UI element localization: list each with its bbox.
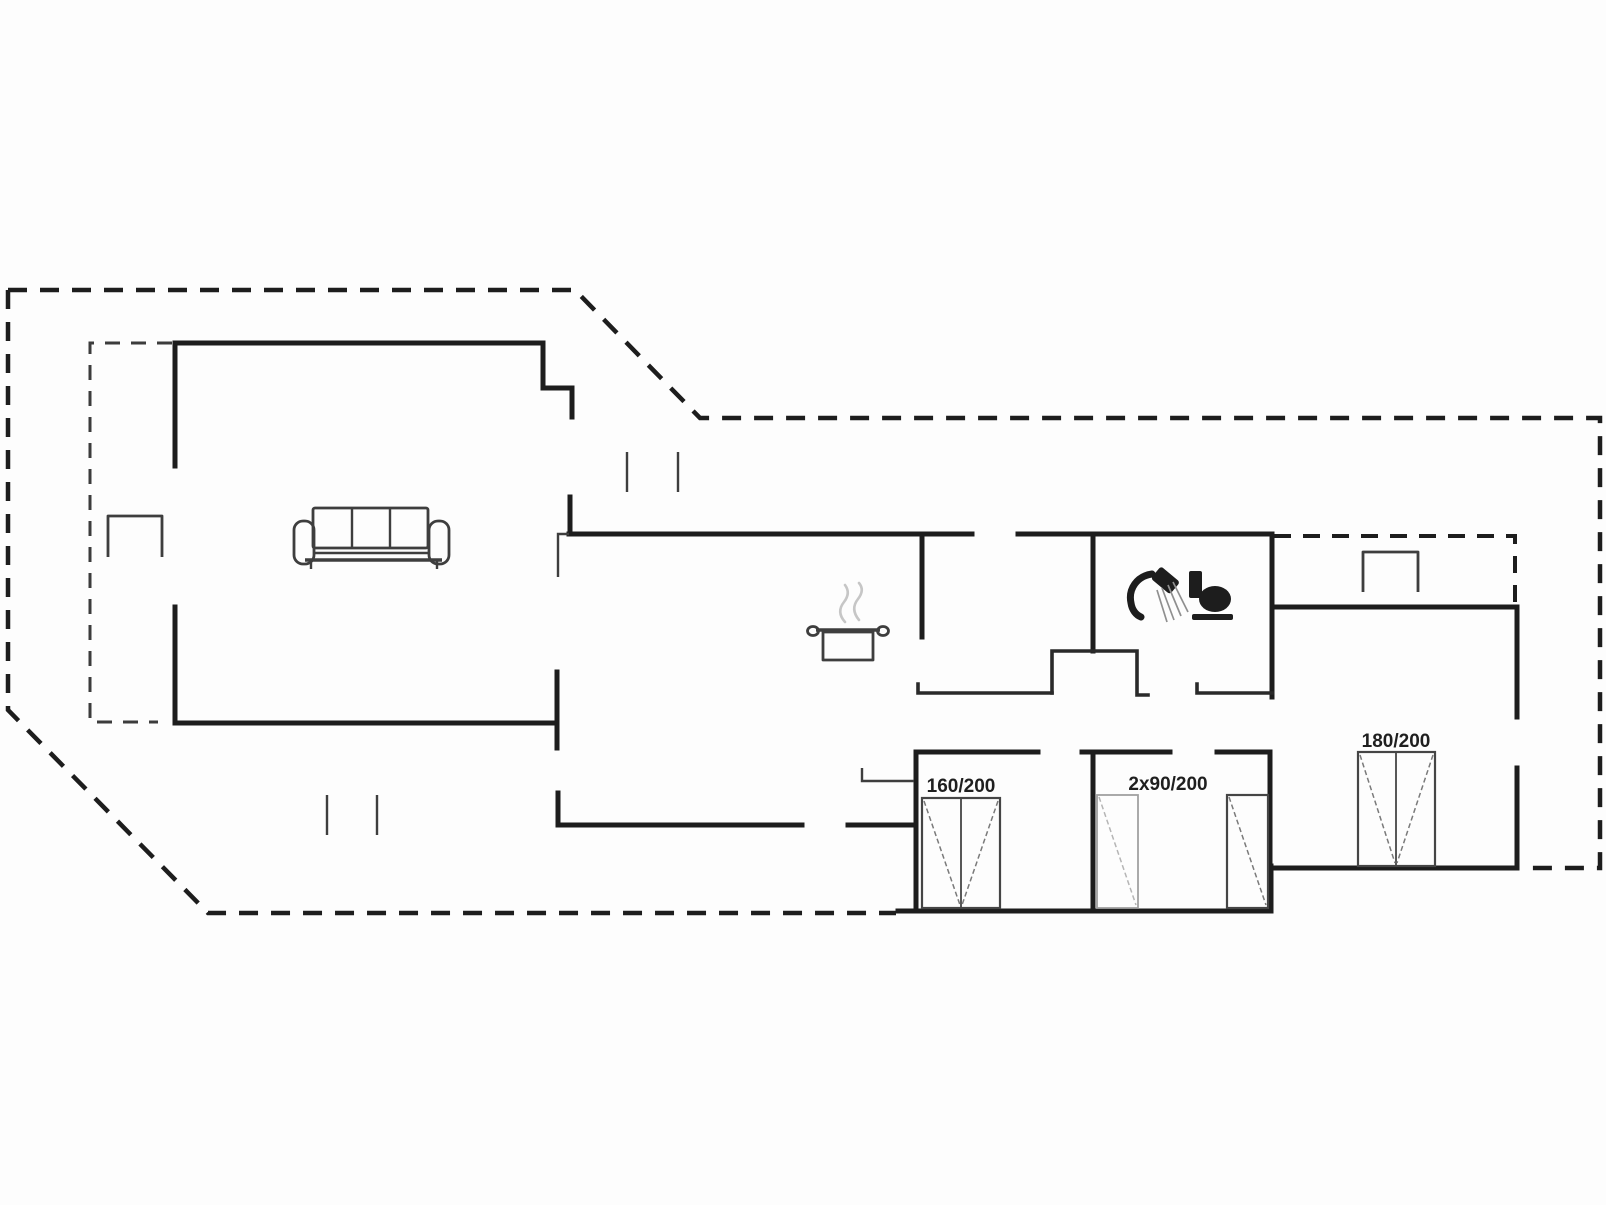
- bed-diagonal: [1397, 755, 1433, 863]
- window-markers: [327, 452, 678, 835]
- wall-living-top-left: [175, 343, 572, 466]
- shower-spray: [1173, 582, 1188, 612]
- bed-size-labels: 160/200 2x90/200 180/200: [927, 731, 1431, 797]
- wall-living-bottom-left: [175, 607, 557, 723]
- beds-2x90x200: [1097, 795, 1268, 908]
- bed-size-label: 160/200: [927, 776, 996, 797]
- shower-arm: [1130, 574, 1152, 617]
- toilet-icon: [1189, 571, 1233, 620]
- boundary-left-bottom: [8, 290, 896, 913]
- cooking-pot-icon: [808, 583, 889, 660]
- wall-door-frame-stub: [558, 534, 569, 577]
- bed-size-label: 180/200: [1362, 731, 1431, 752]
- wall-east-facade-lower: [1272, 768, 1517, 868]
- bed-size-label: 2x90/200: [1128, 774, 1207, 795]
- sofa-arm-left: [294, 521, 314, 564]
- boundary-right-terrace: [1274, 536, 1515, 602]
- outdoor-furniture: [108, 516, 1418, 592]
- wall-corridor-south-left: [558, 793, 802, 825]
- bed-diagonal: [1360, 755, 1395, 863]
- bed-diagonal: [1099, 797, 1136, 905]
- floor-plan: 160/200 2x90/200 180/200: [0, 0, 1606, 1205]
- sofa-back: [313, 508, 428, 548]
- shower-spray: [1157, 590, 1167, 622]
- shower-head: [1151, 566, 1180, 594]
- pot-body: [823, 632, 873, 660]
- steam-icon: [840, 585, 848, 622]
- boundary-left-terrace: [90, 343, 172, 722]
- sofa-arm-right: [429, 521, 449, 564]
- terrace-boundary: [8, 290, 1600, 913]
- wall-connector-thin: [862, 768, 914, 781]
- toilet-bowl: [1199, 586, 1231, 612]
- wall-bathroom-south: [1197, 684, 1272, 693]
- bed-diagonal: [1229, 797, 1266, 905]
- boundary-top-right: [8, 290, 1600, 868]
- steam-icon: [854, 583, 862, 620]
- outdoor-bench-icon: [1363, 552, 1418, 592]
- bed-160x200: [922, 798, 1000, 908]
- shower-icon: [1130, 566, 1188, 622]
- toilet-base: [1192, 614, 1233, 620]
- wall-hall-south: [918, 684, 1052, 693]
- floor-plan-svg: 160/200 2x90/200 180/200: [0, 0, 1606, 1205]
- bed-diagonal: [924, 801, 960, 905]
- sofa-icon: [294, 508, 449, 569]
- bed-diagonal: [962, 801, 998, 905]
- outdoor-table-icon: [108, 516, 162, 557]
- wall-hall-closet: [1052, 651, 1148, 695]
- bed-180x200: [1358, 752, 1435, 866]
- toilet-tank: [1189, 571, 1202, 598]
